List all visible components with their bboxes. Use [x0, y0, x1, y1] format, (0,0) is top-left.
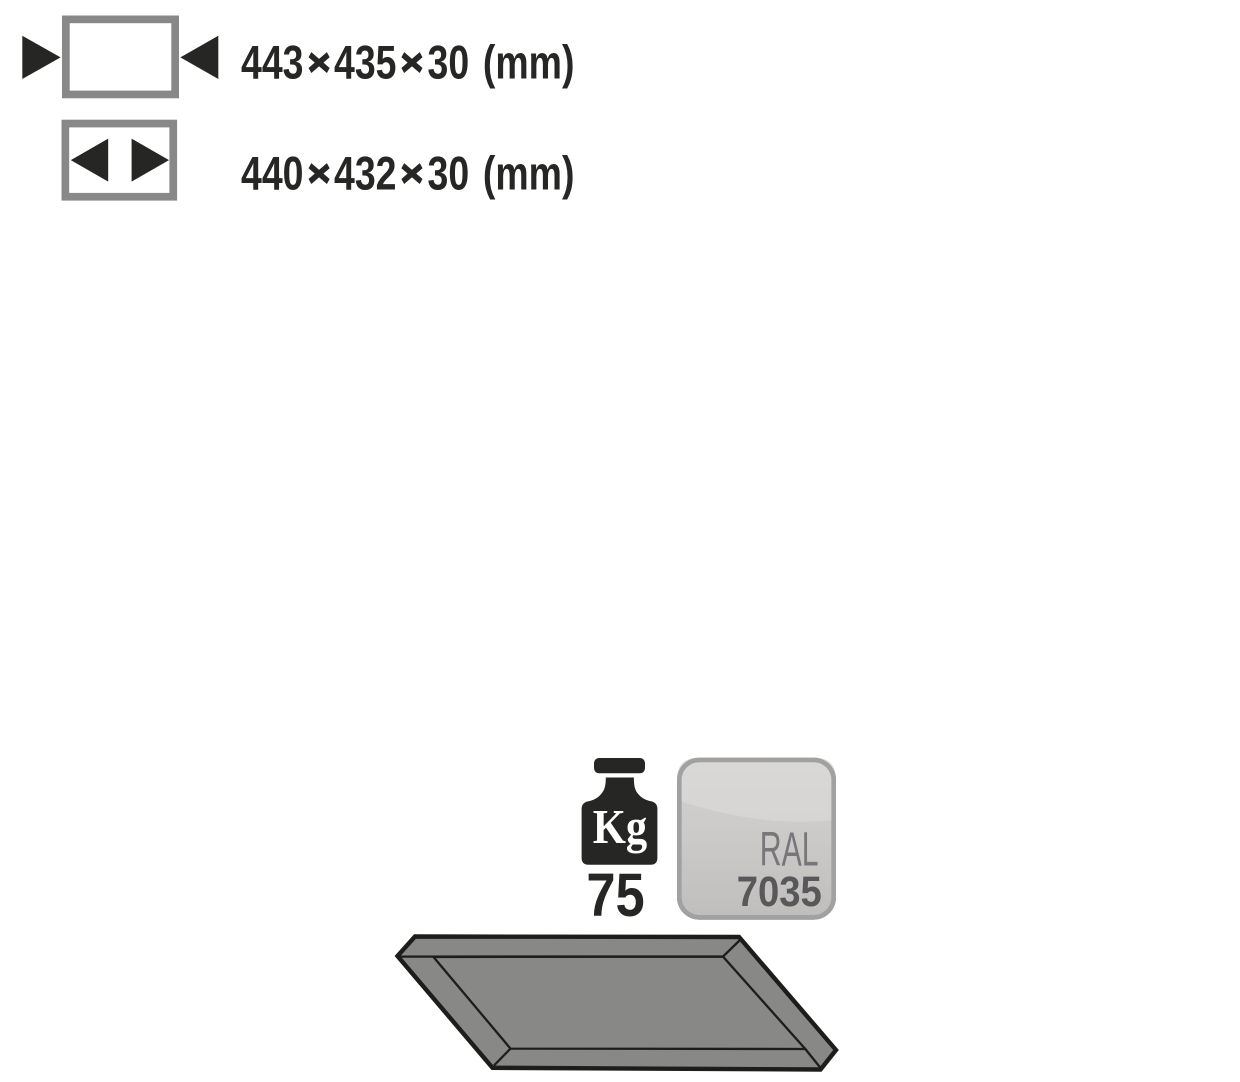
svg-text:443: 443 [241, 38, 303, 90]
svg-text:30: 30 [427, 149, 469, 201]
svg-text:30: 30 [427, 38, 469, 90]
svg-text:440: 440 [241, 149, 303, 201]
svg-text:75: 75 [586, 861, 644, 930]
svg-text:7035: 7035 [737, 867, 822, 916]
svg-text:(mm): (mm) [483, 38, 575, 90]
svg-text:(mm): (mm) [483, 149, 575, 201]
svg-text:432: 432 [334, 149, 396, 201]
svg-text:435: 435 [334, 38, 396, 90]
svg-text:Kg: Kg [593, 799, 647, 853]
